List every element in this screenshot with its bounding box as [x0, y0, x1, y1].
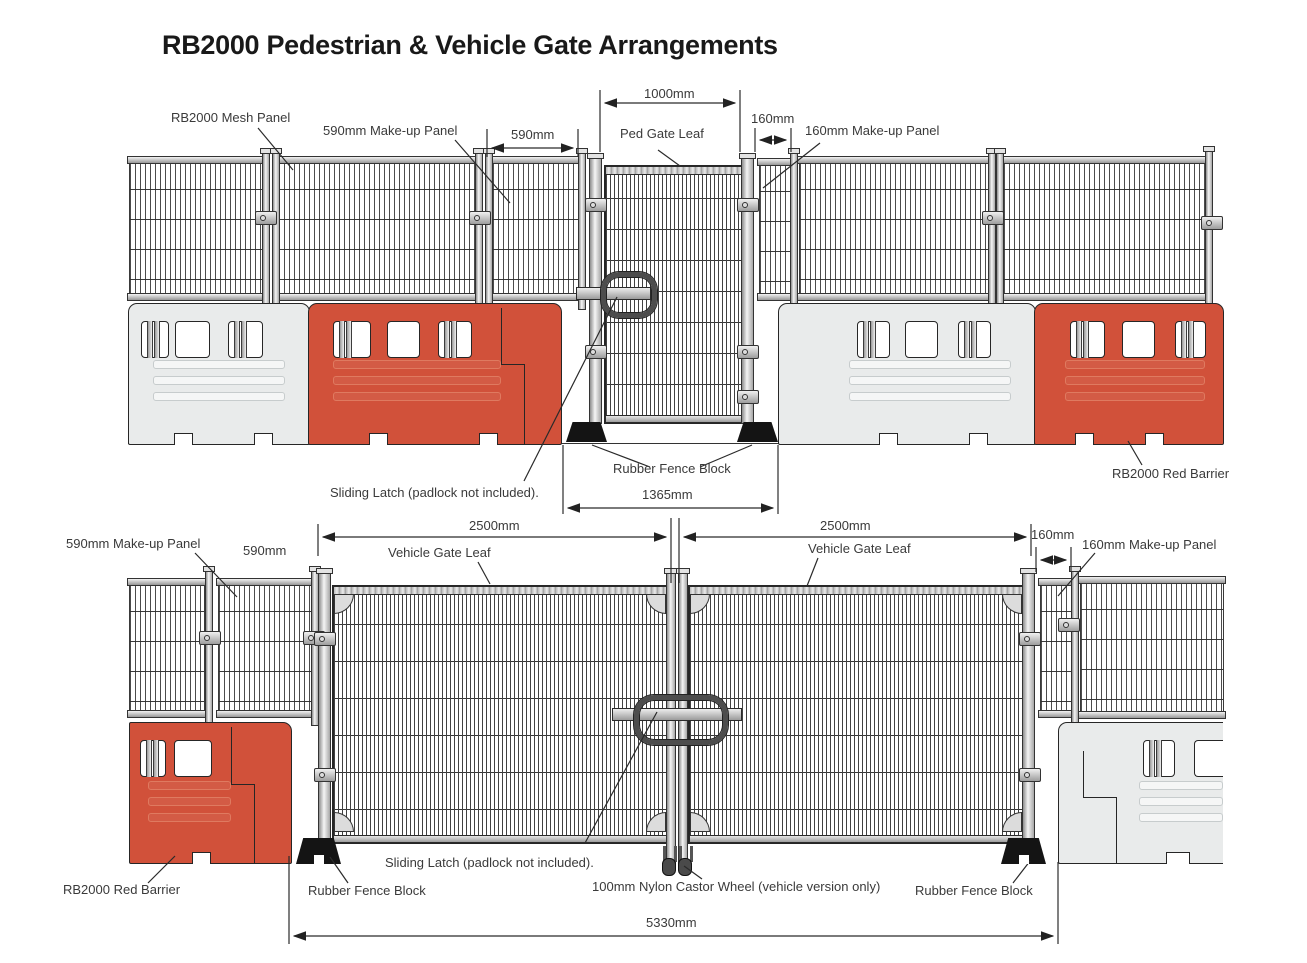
barrier-window	[857, 321, 890, 358]
barrier-window	[387, 321, 420, 358]
label-red-barrier: RB2000 Red Barrier	[1112, 467, 1229, 481]
dim-590: 590mm	[511, 128, 554, 142]
fence-post	[262, 152, 270, 310]
dim-2500-right: 2500mm	[820, 519, 871, 533]
barrier-window	[438, 321, 472, 358]
makeup-panel-160	[759, 160, 791, 299]
sliding-latch-handle	[601, 272, 657, 318]
barrier-window	[905, 321, 938, 358]
barrier-red	[129, 722, 292, 864]
panel-coupler	[1201, 216, 1223, 230]
label-castor: 100mm Nylon Castor Wheel (vehicle versio…	[592, 880, 880, 894]
makeup-panel-160	[1040, 580, 1072, 716]
diagram-canvas: RB2000 Pedestrian & Vehicle Gate Arrange…	[0, 0, 1307, 963]
barrier-window	[174, 740, 212, 777]
gate-hinge	[1019, 632, 1041, 646]
label-rubber-block-right: Rubber Fence Block	[915, 884, 1033, 898]
label-makeup-590: 590mm Make-up Panel	[323, 124, 457, 138]
mesh-panel	[278, 158, 476, 299]
gate-hinge	[737, 198, 759, 212]
dim-590: 590mm	[243, 544, 286, 558]
latch-keep	[737, 390, 759, 404]
latch-keep	[737, 345, 759, 359]
barrier-window	[141, 321, 169, 358]
gate-hinge	[314, 632, 336, 646]
label-rubber-block: Rubber Fence Block	[613, 462, 731, 476]
fence-post	[996, 152, 1004, 310]
dim-160: 160mm	[1031, 528, 1074, 542]
page-title: RB2000 Pedestrian & Vehicle Gate Arrange…	[162, 30, 778, 61]
fence-post	[790, 152, 798, 310]
barrier-window	[1122, 321, 1155, 358]
mesh-panel	[129, 158, 263, 299]
mesh-panel	[1080, 578, 1224, 717]
label-sliding-latch: Sliding Latch (padlock not included).	[330, 486, 539, 500]
panel-coupler	[1058, 618, 1080, 632]
label-rubber-block-left: Rubber Fence Block	[308, 884, 426, 898]
makeup-panel-590	[492, 158, 579, 299]
panel-coupler	[199, 631, 221, 645]
castor-wheel	[662, 858, 676, 876]
label-vehicle-gate-leaf-right: Vehicle Gate Leaf	[808, 542, 911, 556]
gate-hinge	[585, 198, 607, 212]
barrier-gray	[1058, 722, 1223, 864]
fence-post	[485, 152, 493, 310]
barrier-window	[175, 321, 210, 358]
label-vehicle-gate-leaf-left: Vehicle Gate Leaf	[388, 546, 491, 560]
dim-1000: 1000mm	[644, 87, 695, 101]
label-makeup-160: 160mm Make-up Panel	[1082, 538, 1216, 552]
panel-coupler	[255, 211, 277, 225]
label-makeup-160: 160mm Make-up Panel	[805, 124, 939, 138]
fence-post	[475, 152, 483, 310]
barrier-window	[958, 321, 991, 358]
panel-coupler	[469, 211, 491, 225]
barrier-window	[140, 740, 166, 777]
fence-post	[1205, 150, 1213, 312]
barrier-window	[333, 321, 371, 358]
castor-wheel	[678, 858, 692, 876]
barrier-red	[1034, 303, 1224, 445]
barrier-window	[1070, 321, 1105, 358]
rubber-fence-block	[566, 422, 607, 442]
mesh-panel	[129, 580, 205, 716]
fence-post	[988, 152, 996, 310]
barrier-gray	[128, 303, 310, 445]
barrier-red	[308, 303, 562, 445]
barrier-window	[1194, 740, 1223, 777]
gate-hinge	[585, 345, 607, 359]
fence-post	[272, 152, 280, 310]
barrier-window	[228, 321, 263, 358]
gate-post	[1022, 572, 1035, 850]
label-red-barrier: RB2000 Red Barrier	[63, 883, 180, 897]
label-sliding-latch: Sliding Latch (padlock not included).	[385, 856, 594, 870]
barrier-gray	[778, 303, 1036, 445]
mesh-panel	[799, 158, 989, 299]
dim-5330: 5330mm	[646, 916, 697, 930]
gate-hinge	[1019, 768, 1041, 782]
label-mesh-panel: RB2000 Mesh Panel	[171, 111, 290, 125]
fence-post	[1071, 570, 1079, 726]
dim-1365: 1365mm	[642, 488, 693, 502]
rubber-fence-block	[737, 422, 778, 442]
barrier-window	[1143, 740, 1175, 777]
barrier-window	[1175, 321, 1206, 358]
gate-hinge	[314, 768, 336, 782]
makeup-panel-590	[218, 580, 312, 716]
fence-post	[205, 570, 213, 726]
dim-160: 160mm	[751, 112, 794, 126]
sliding-latch-handle	[634, 695, 728, 745]
dim-2500-left: 2500mm	[469, 519, 520, 533]
label-ped-gate-leaf: Ped Gate Leaf	[620, 127, 704, 141]
label-makeup-590: 590mm Make-up Panel	[66, 537, 200, 551]
panel-coupler	[982, 211, 1004, 225]
gate-post	[318, 572, 331, 850]
mesh-panel	[1003, 158, 1208, 299]
